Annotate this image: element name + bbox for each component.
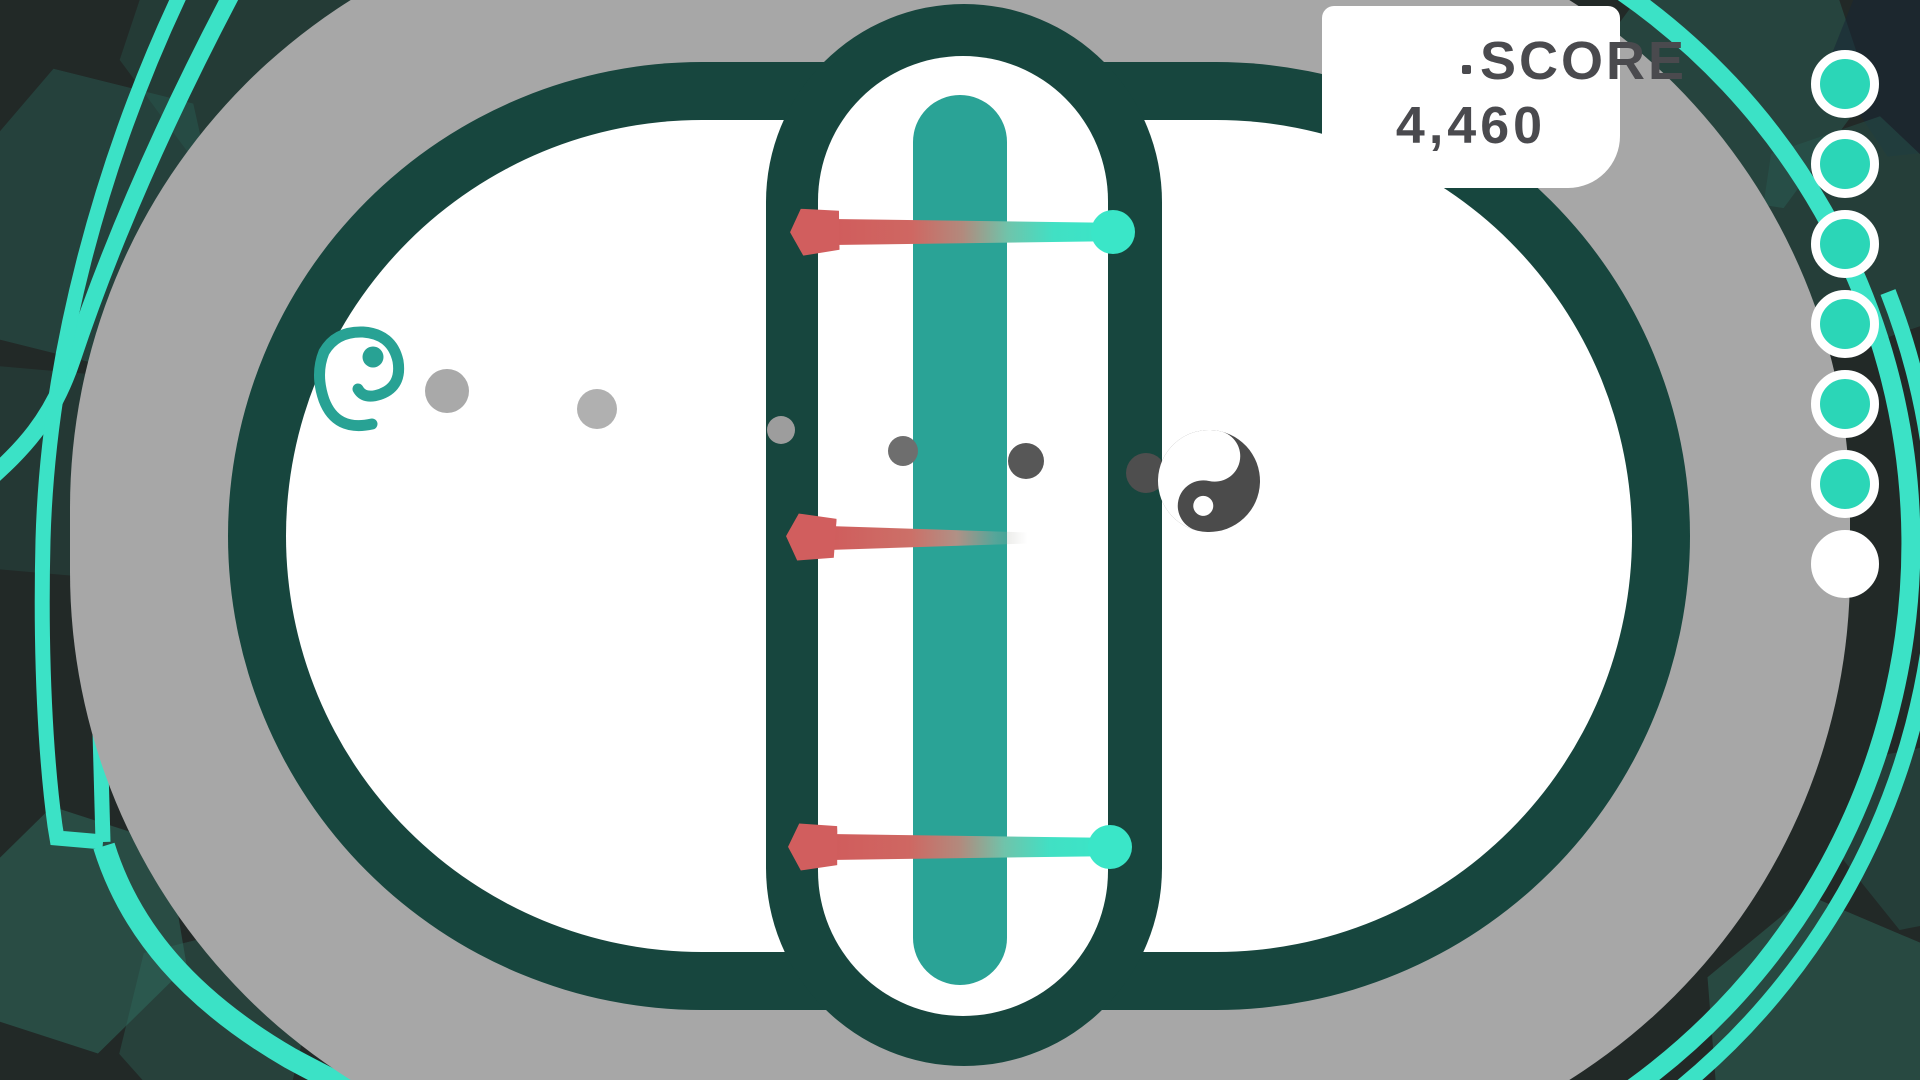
score-value: 4,460 — [1322, 96, 1620, 156]
score-decorative-dot — [1462, 65, 1471, 74]
progress-pip-current — [1811, 530, 1879, 598]
progress-pip-filled — [1811, 50, 1879, 118]
progress-pips-column — [1811, 50, 1879, 610]
progress-pip-filled — [1811, 130, 1879, 198]
score-panel: SCORE 4,460 — [1322, 6, 1620, 188]
yin-yang-player — [0, 0, 1920, 1080]
progress-pip-filled — [1811, 210, 1879, 278]
progress-pip-filled — [1811, 450, 1879, 518]
score-label: SCORE — [1322, 30, 1620, 92]
progress-pip-filled — [1811, 370, 1879, 438]
progress-pip-filled — [1811, 290, 1879, 358]
game-stage[interactable]: SCORE 4,460 — [0, 0, 1920, 1080]
